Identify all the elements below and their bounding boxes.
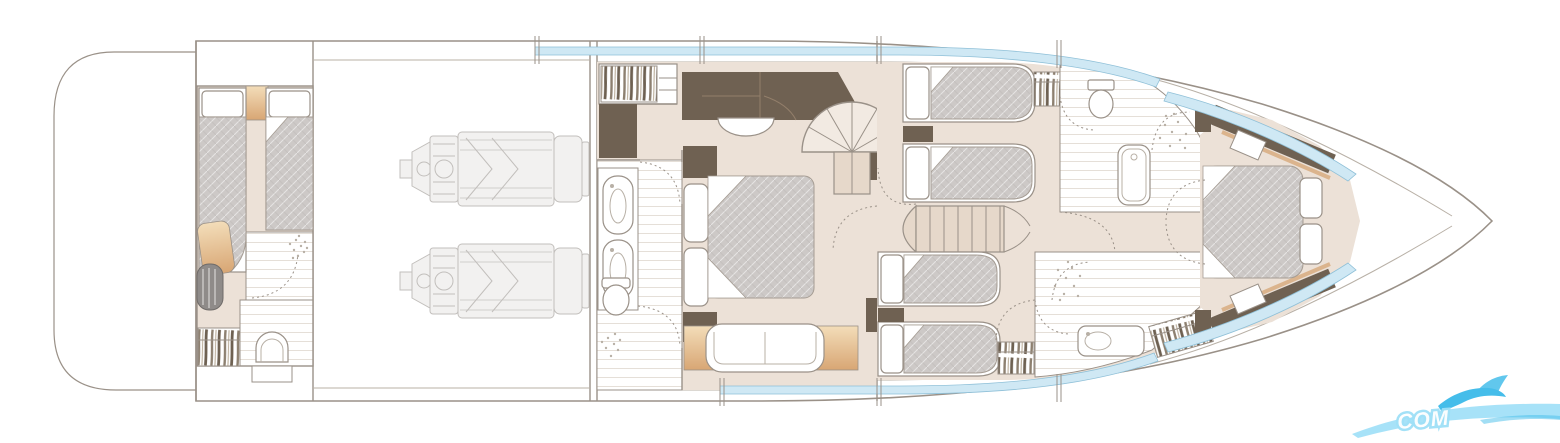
sink: [603, 176, 633, 234]
pillow: [1300, 224, 1322, 264]
floor-plan-svg: COM: [0, 0, 1560, 443]
master-double-bed: [708, 176, 814, 298]
pillow: [906, 67, 929, 119]
bedside-block: [903, 126, 933, 142]
guest-bed-starboard-outer: [903, 64, 1035, 122]
bathtub: [1118, 145, 1150, 205]
crew-cabin: [197, 86, 313, 382]
watermark-text: COM: [1396, 407, 1450, 434]
master-wardrobe: [599, 64, 677, 104]
master-sofa: [706, 324, 824, 372]
pillow: [202, 91, 243, 117]
toilet: [602, 278, 630, 315]
guest-wardrobe-port: [998, 342, 1034, 374]
swim-platform: [54, 52, 196, 390]
pillow: [1300, 178, 1322, 218]
pillow: [269, 91, 310, 117]
crew-shower-floor: [246, 232, 313, 300]
nightstand: [684, 184, 708, 242]
crew-wardrobe: [198, 328, 240, 366]
crew-berth-starboard: [266, 88, 313, 230]
watermark: COM: [1352, 375, 1560, 438]
bedside-block: [878, 308, 904, 322]
wall-cabinet: [866, 298, 877, 332]
washer: [197, 264, 223, 310]
guest-bed-starboard-inner: [903, 144, 1035, 202]
headboard-block: [683, 146, 717, 178]
toilet: [1088, 80, 1114, 118]
guest-bed-port-outer: [878, 322, 1000, 376]
nightstand: [684, 248, 708, 306]
engine-port: [400, 132, 589, 206]
pillow: [881, 255, 903, 303]
crew-headboard-wood: [246, 86, 268, 120]
floor-plan-image: COM: [0, 0, 1560, 443]
crew-toilet: [252, 332, 292, 382]
watermark-wave: [1352, 404, 1560, 438]
master-cabinet-dark: [599, 104, 637, 158]
engine-starboard: [400, 244, 589, 318]
washbasin: [1078, 326, 1144, 356]
guest-bed-port-inner: [878, 252, 1000, 306]
